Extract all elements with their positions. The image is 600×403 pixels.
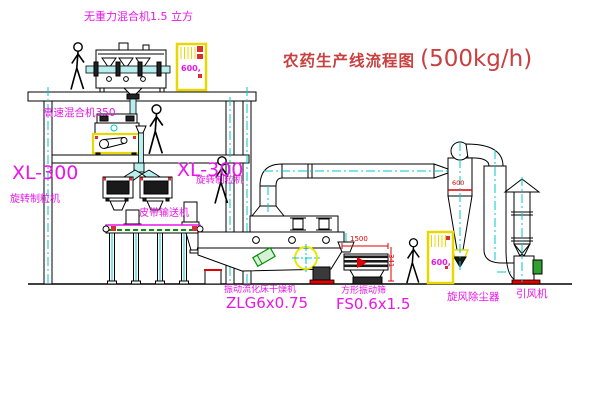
dimension-cyclone-size: 600 — [452, 180, 464, 187]
label-belt-conveyor: 皮带输送机 — [139, 209, 189, 220]
person-top-floor — [71, 43, 84, 90]
label-granulator-left: 旋转制粒机 — [10, 195, 60, 206]
label-high-speed-mixer: 高速混合机350 — [43, 108, 116, 119]
label-gravity-free-mixer: 无重力混合机1.5 立方 — [84, 11, 193, 23]
title-capacity: (500kg/h) — [420, 46, 532, 72]
page-title: 农药生产线流程图 (500kg/h) — [283, 46, 532, 72]
gravity-free-mixer-machine — [86, 43, 170, 114]
granulator-machines — [103, 177, 172, 210]
label-sieve-model: FS0.6x1.5 — [336, 297, 410, 313]
label-dryer-model: ZLG6x0.75 — [226, 296, 308, 312]
fluid-bed-dryer-machine — [198, 216, 344, 284]
label-fan: 引风机 — [516, 289, 548, 300]
label-cyclone: 旋风除尘器 — [447, 292, 500, 303]
dimension-sieve-height: 341 — [387, 254, 394, 267]
exhaust-duct — [252, 164, 452, 216]
person-second-floor — [149, 105, 163, 154]
flow-diagram-canvas: 农药生产线流程图 (500kg/h) 无重力混合机1.5 立方 高速混合机350… — [0, 0, 600, 403]
cabinet-right-text: 600, — [431, 259, 451, 267]
cabinet-top-text: 600, — [181, 65, 201, 73]
label-xl300-left: XL-300 — [12, 164, 78, 184]
person-near-sieve — [407, 239, 419, 283]
title-chinese: 农药生产线流程图 — [283, 52, 415, 70]
label-granulator-mid: 旋转制粒机 — [196, 176, 244, 186]
dimension-sieve-length: 1500 — [350, 236, 368, 243]
